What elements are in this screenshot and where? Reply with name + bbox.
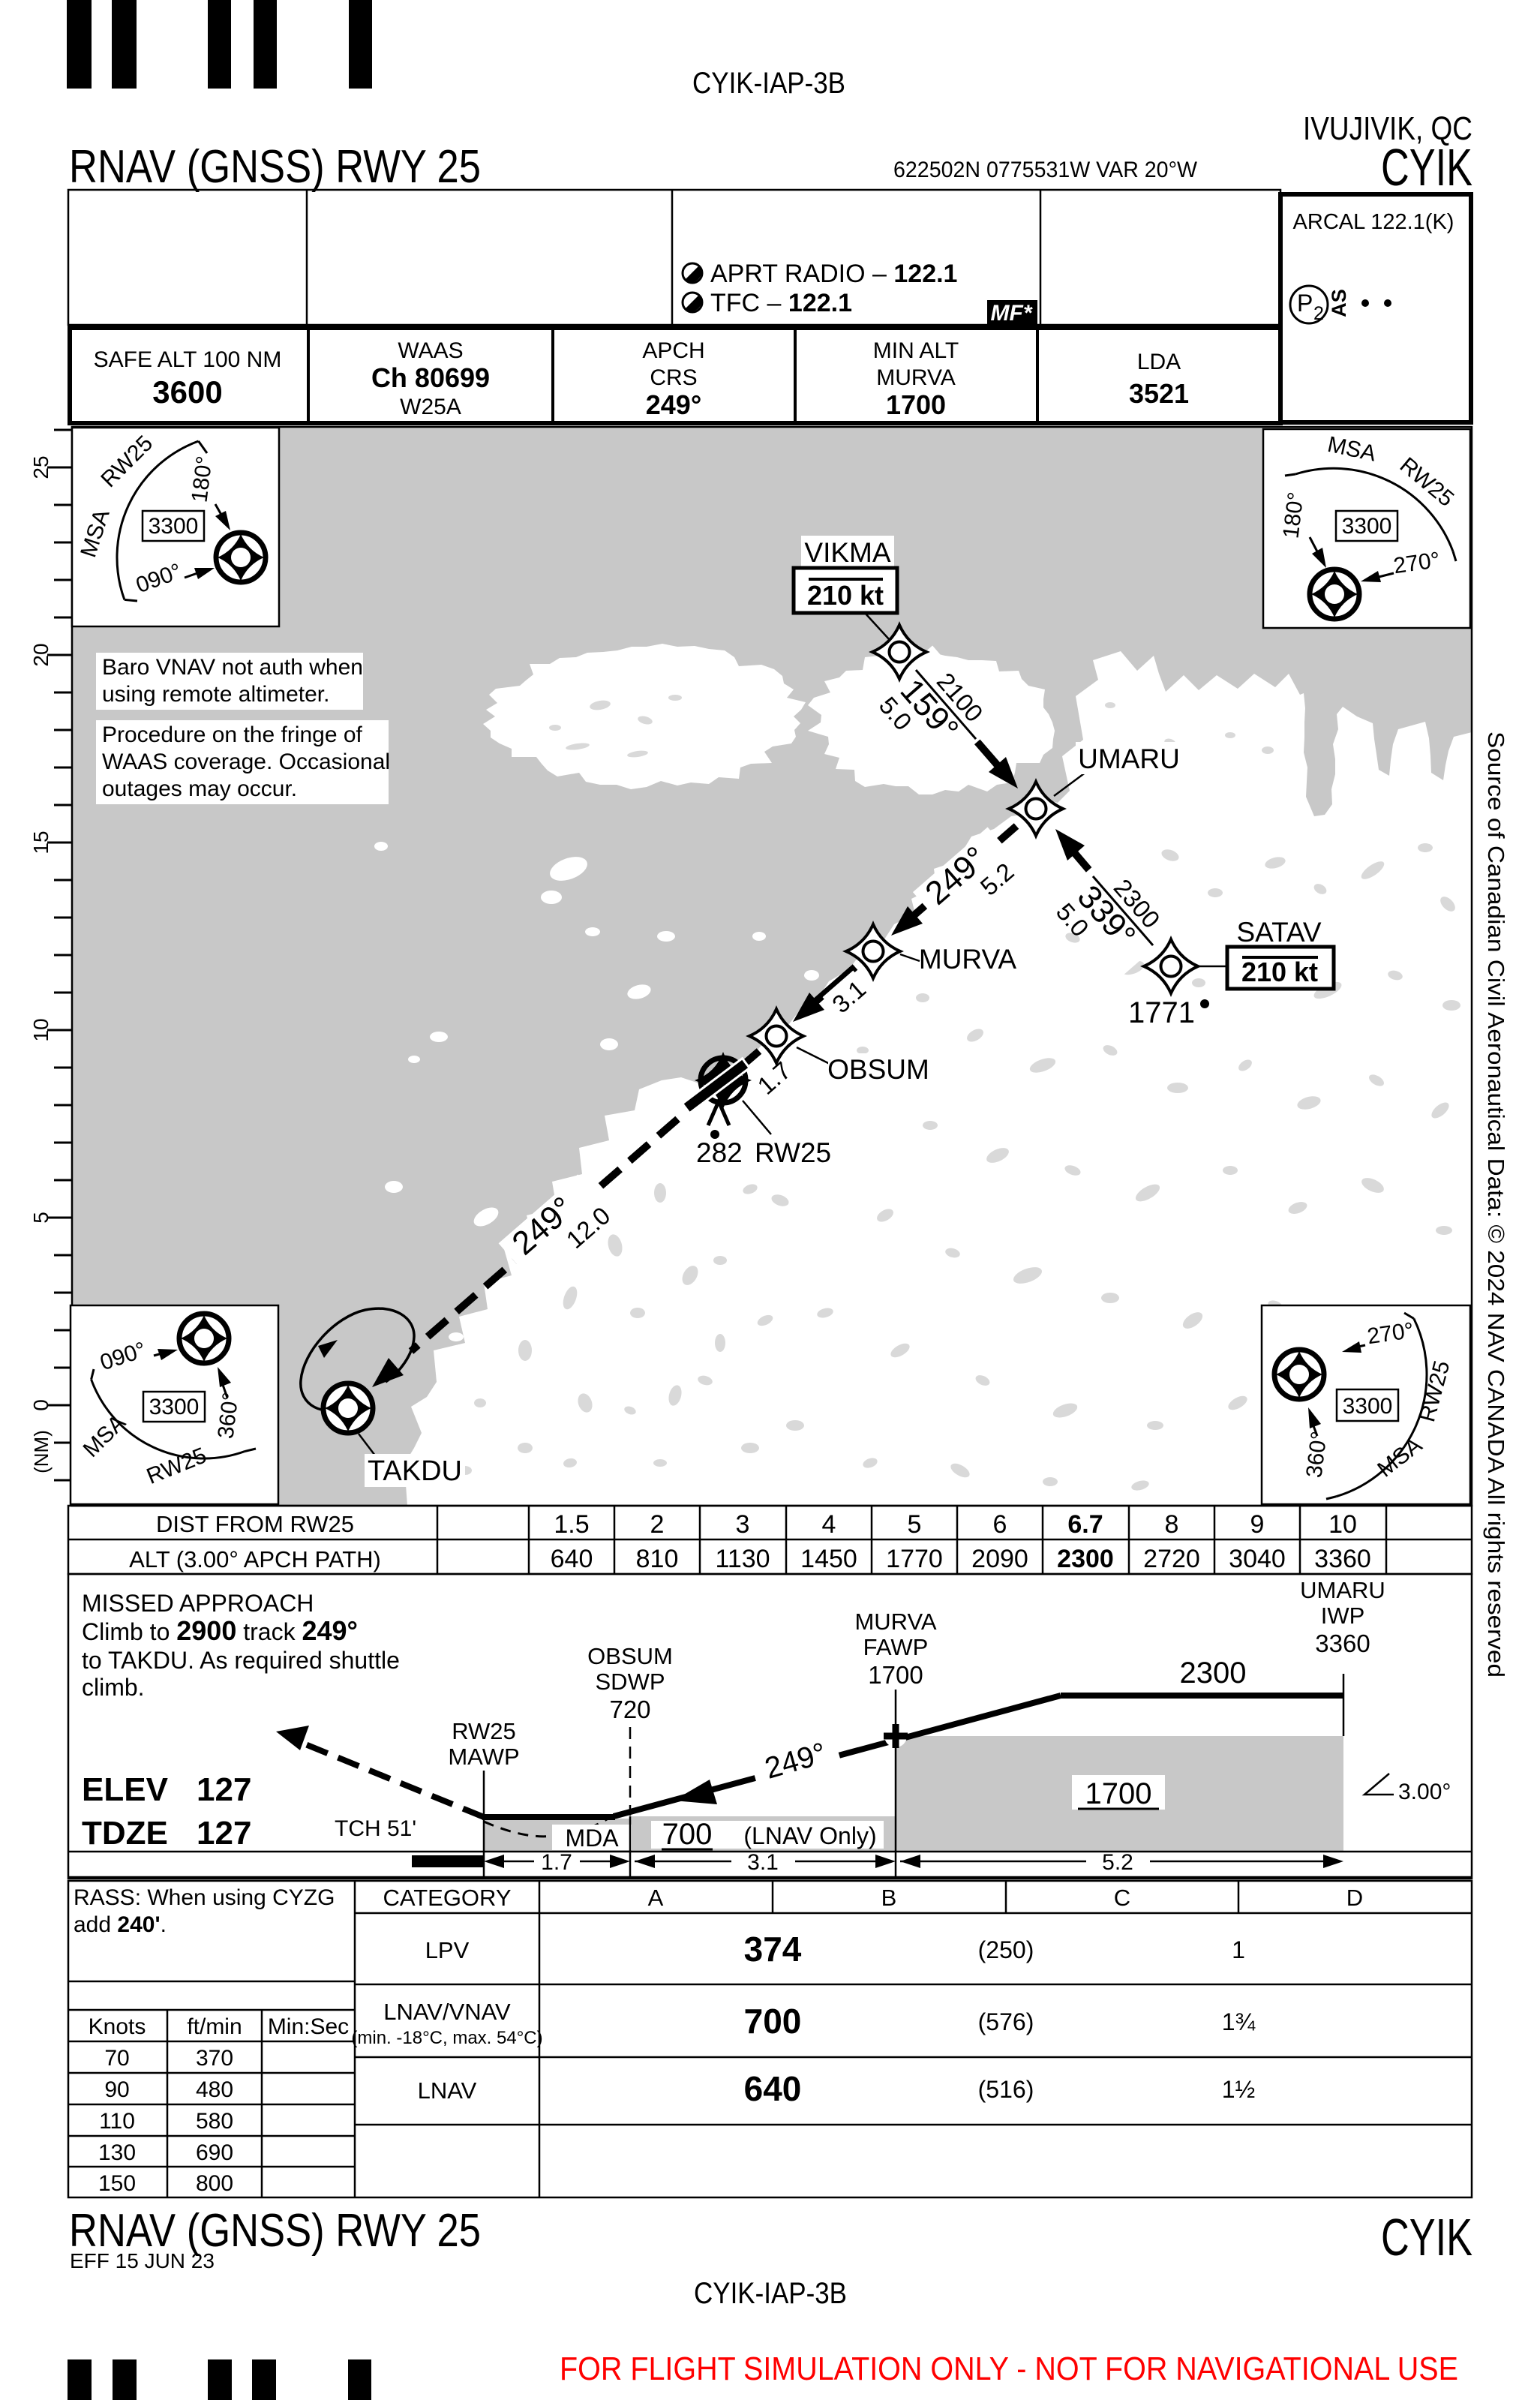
svg-text:Baro VNAV not auth when: Baro VNAV not auth when bbox=[102, 655, 363, 680]
svg-text:3.00°: 3.00° bbox=[1398, 1780, 1451, 1804]
svg-text:282: 282 bbox=[696, 1137, 743, 1168]
svg-text:1: 1 bbox=[1232, 1936, 1245, 1963]
svg-text:0: 0 bbox=[29, 1399, 53, 1411]
svg-text:(LNAV Only): (LNAV Only) bbox=[743, 1822, 876, 1849]
svg-text:3360: 3360 bbox=[1314, 1545, 1371, 1573]
svg-text:UMARU: UMARU bbox=[1078, 743, 1180, 774]
svg-text:1770: 1770 bbox=[886, 1545, 943, 1573]
svg-text:70: 70 bbox=[104, 2046, 129, 2071]
svg-text:10: 10 bbox=[29, 1018, 53, 1041]
svg-text:Source of Canadian Civil Aeron: Source of Canadian Civil Aeronautical Da… bbox=[1483, 731, 1509, 1678]
svg-text:Knots: Knots bbox=[89, 2014, 146, 2039]
svg-text:add 240'.: add 240'. bbox=[74, 1912, 167, 1937]
svg-text:MDA: MDA bbox=[565, 1825, 619, 1852]
svg-text:374: 374 bbox=[744, 1930, 802, 1969]
svg-text:C: C bbox=[1114, 1885, 1130, 1911]
svg-text:EFF 15 JUN 23: EFF 15 JUN 23 bbox=[70, 2249, 215, 2272]
svg-text:TCH 51': TCH 51' bbox=[335, 1816, 416, 1841]
svg-text:210 kt: 210 kt bbox=[807, 580, 884, 611]
svg-text:ALT (3.00° APCH PATH): ALT (3.00° APCH PATH) bbox=[129, 1546, 381, 1572]
svg-text:outages may occur.: outages may occur. bbox=[102, 776, 297, 801]
svg-text:1700: 1700 bbox=[886, 389, 946, 420]
svg-text:LNAV/VNAV: LNAV/VNAV bbox=[383, 1999, 511, 2025]
svg-text:MURVA: MURVA bbox=[876, 365, 956, 390]
svg-text:WAAS coverage. Occasional: WAAS coverage. Occasional bbox=[102, 749, 390, 774]
svg-text:2300: 2300 bbox=[1180, 1657, 1247, 1690]
svg-text:90: 90 bbox=[104, 2077, 129, 2102]
svg-text:3.1: 3.1 bbox=[747, 1850, 779, 1875]
svg-text:3040: 3040 bbox=[1229, 1545, 1286, 1573]
svg-text:WAAS: WAAS bbox=[398, 338, 463, 363]
svg-text:RNAV (GNSS) RWY 25: RNAV (GNSS) RWY 25 bbox=[69, 141, 481, 193]
svg-text:MIN ALT: MIN ALT bbox=[873, 338, 959, 363]
svg-text:LNAV: LNAV bbox=[418, 2077, 477, 2104]
svg-text:1¾: 1¾ bbox=[1222, 2008, 1256, 2035]
svg-text:VIKMA: VIKMA bbox=[804, 537, 890, 568]
svg-text:700: 700 bbox=[744, 2002, 802, 2041]
svg-text:800: 800 bbox=[196, 2171, 233, 2196]
svg-text:MF*: MF* bbox=[991, 301, 1033, 326]
svg-text:6: 6 bbox=[993, 1510, 1007, 1539]
svg-text:249°: 249° bbox=[761, 1737, 830, 1786]
svg-text:SATAV: SATAV bbox=[1236, 917, 1321, 948]
svg-text:5: 5 bbox=[29, 1212, 53, 1224]
svg-text:720: 720 bbox=[609, 1696, 650, 1723]
svg-text:2: 2 bbox=[1313, 303, 1324, 324]
svg-text:AS: AS bbox=[1328, 289, 1350, 317]
svg-text:FAWP: FAWP bbox=[863, 1634, 929, 1660]
svg-text:370: 370 bbox=[196, 2046, 233, 2071]
svg-text:3: 3 bbox=[736, 1510, 750, 1539]
svg-text:Ch 80699: Ch 80699 bbox=[371, 362, 490, 393]
svg-text:UMARU: UMARU bbox=[1300, 1577, 1385, 1603]
svg-text:15: 15 bbox=[29, 831, 53, 854]
svg-text:CRS: CRS bbox=[650, 365, 697, 390]
svg-text:MISSED APPROACH: MISSED APPROACH bbox=[82, 1590, 314, 1617]
svg-text:20: 20 bbox=[29, 643, 53, 666]
svg-text:110: 110 bbox=[99, 2109, 135, 2134]
svg-text:(min. -18°C, max. 54°C): (min. -18°C, max. 54°C) bbox=[351, 2028, 542, 2048]
svg-text:1.7: 1.7 bbox=[541, 1850, 572, 1875]
svg-text:RW25: RW25 bbox=[755, 1137, 831, 1168]
svg-text:1.5: 1.5 bbox=[554, 1510, 589, 1539]
svg-text:3521: 3521 bbox=[1129, 378, 1189, 409]
svg-text:A: A bbox=[648, 1885, 664, 1911]
svg-text:9: 9 bbox=[1250, 1510, 1265, 1539]
svg-text:RW25: RW25 bbox=[452, 1718, 516, 1744]
svg-text:5.2: 5.2 bbox=[1102, 1850, 1133, 1875]
svg-text:480: 480 bbox=[196, 2077, 233, 2102]
svg-text:3300: 3300 bbox=[1343, 1394, 1393, 1419]
svg-text:P: P bbox=[1297, 290, 1313, 317]
svg-text:D: D bbox=[1346, 1885, 1363, 1911]
svg-text:CYIK: CYIK bbox=[1381, 138, 1472, 197]
svg-text:DIST FROM RW25: DIST FROM RW25 bbox=[156, 1511, 354, 1537]
svg-text:150: 150 bbox=[98, 2171, 136, 2196]
svg-text:CATEGORY: CATEGORY bbox=[383, 1885, 511, 1911]
svg-text:4: 4 bbox=[822, 1510, 836, 1539]
svg-text:622502N 0775531W VAR 20°W: 622502N 0775531W VAR 20°W bbox=[893, 158, 1198, 182]
svg-text:3360: 3360 bbox=[1315, 1630, 1370, 1657]
svg-text:(250): (250) bbox=[978, 1936, 1034, 1963]
svg-text:3300: 3300 bbox=[1342, 514, 1392, 539]
svg-text:OBSUM: OBSUM bbox=[827, 1054, 929, 1085]
svg-text:using remote altimeter.: using remote altimeter. bbox=[102, 682, 329, 707]
svg-text:210 kt: 210 kt bbox=[1241, 957, 1318, 987]
svg-text:2300: 2300 bbox=[1057, 1545, 1114, 1573]
svg-text:5: 5 bbox=[908, 1510, 922, 1539]
svg-text:APCH: APCH bbox=[642, 338, 704, 363]
svg-text:690: 690 bbox=[196, 2140, 233, 2165]
svg-text:SDWP: SDWP bbox=[596, 1669, 665, 1695]
svg-text:TDZE: TDZE bbox=[82, 1815, 168, 1852]
svg-text:640: 640 bbox=[744, 2069, 802, 2108]
svg-text:RASS: When using CYZG: RASS: When using CYZG bbox=[74, 1885, 335, 1910]
svg-text:130: 130 bbox=[98, 2140, 136, 2165]
svg-text:1½: 1½ bbox=[1222, 2076, 1255, 2103]
svg-text:(NM): (NM) bbox=[30, 1430, 53, 1473]
svg-text:700: 700 bbox=[662, 1818, 713, 1851]
svg-text:6.7: 6.7 bbox=[1067, 1510, 1103, 1539]
svg-text:FOR FLIGHT SIMULATION ONLY - N: FOR FLIGHT SIMULATION ONLY - NOT FOR NAV… bbox=[560, 2350, 1458, 2387]
svg-text:climb.: climb. bbox=[82, 1674, 145, 1701]
svg-text:Procedure on the fringe of: Procedure on the fringe of bbox=[102, 722, 363, 747]
svg-text:3600: 3600 bbox=[152, 374, 222, 410]
svg-text:3300: 3300 bbox=[149, 514, 199, 539]
svg-text:640: 640 bbox=[551, 1545, 593, 1573]
svg-text:2090: 2090 bbox=[971, 1545, 1028, 1573]
svg-text:25: 25 bbox=[29, 455, 53, 479]
svg-text:127: 127 bbox=[197, 1815, 251, 1852]
svg-text:TAKDU: TAKDU bbox=[368, 1455, 462, 1487]
svg-text:580: 580 bbox=[196, 2109, 233, 2134]
svg-text:ELEV: ELEV bbox=[82, 1771, 169, 1808]
svg-text:MURVA: MURVA bbox=[919, 944, 1017, 975]
svg-text:1130: 1130 bbox=[715, 1545, 770, 1573]
svg-text:CYIK-IAP-3B: CYIK-IAP-3B bbox=[694, 2277, 847, 2310]
svg-text:10: 10 bbox=[1328, 1510, 1357, 1539]
svg-text:ARCAL 122.1(K): ARCAL 122.1(K) bbox=[1293, 210, 1454, 234]
svg-text:Min:Sec: Min:Sec bbox=[268, 2014, 349, 2039]
svg-text:LDA: LDA bbox=[1137, 350, 1181, 374]
svg-text:2720: 2720 bbox=[1143, 1545, 1200, 1573]
svg-text:CYIK: CYIK bbox=[1381, 2208, 1472, 2266]
svg-text:LPV: LPV bbox=[425, 1937, 470, 1963]
svg-text:CYIK-IAP-3B: CYIK-IAP-3B bbox=[692, 67, 845, 100]
svg-text:IWP: IWP bbox=[1321, 1603, 1365, 1629]
svg-text:APRT RADIO – 122.1: APRT RADIO – 122.1 bbox=[710, 260, 957, 288]
svg-text:1700: 1700 bbox=[1085, 1777, 1152, 1810]
svg-text:(516): (516) bbox=[978, 2076, 1034, 2103]
svg-text:MAWP: MAWP bbox=[448, 1744, 519, 1770]
svg-text:(576): (576) bbox=[978, 2008, 1034, 2035]
svg-text:MURVA: MURVA bbox=[854, 1609, 936, 1635]
svg-text:W25A: W25A bbox=[400, 395, 461, 419]
svg-text:B: B bbox=[881, 1885, 897, 1911]
svg-text:8: 8 bbox=[1165, 1510, 1179, 1539]
svg-text:810: 810 bbox=[636, 1545, 679, 1573]
svg-text:1700: 1700 bbox=[868, 1661, 923, 1689]
svg-text:127: 127 bbox=[197, 1771, 251, 1808]
svg-text:Climb to 2900 track 249°: Climb to 2900 track 249° bbox=[82, 1615, 358, 1646]
svg-text:to TAKDU. As required shuttle: to TAKDU. As required shuttle bbox=[82, 1647, 400, 1674]
svg-text:OBSUM: OBSUM bbox=[587, 1643, 673, 1669]
svg-text:SAFE ALT 100 NM: SAFE ALT 100 NM bbox=[94, 347, 282, 372]
svg-text:TFC – 122.1: TFC – 122.1 bbox=[710, 289, 852, 317]
svg-text:1450: 1450 bbox=[800, 1545, 857, 1573]
svg-text:3300: 3300 bbox=[149, 1395, 200, 1419]
svg-text:1771: 1771 bbox=[1128, 996, 1195, 1029]
svg-text:2: 2 bbox=[650, 1510, 665, 1539]
svg-text:249°: 249° bbox=[646, 389, 701, 420]
svg-text:ft/min: ft/min bbox=[187, 2014, 242, 2039]
